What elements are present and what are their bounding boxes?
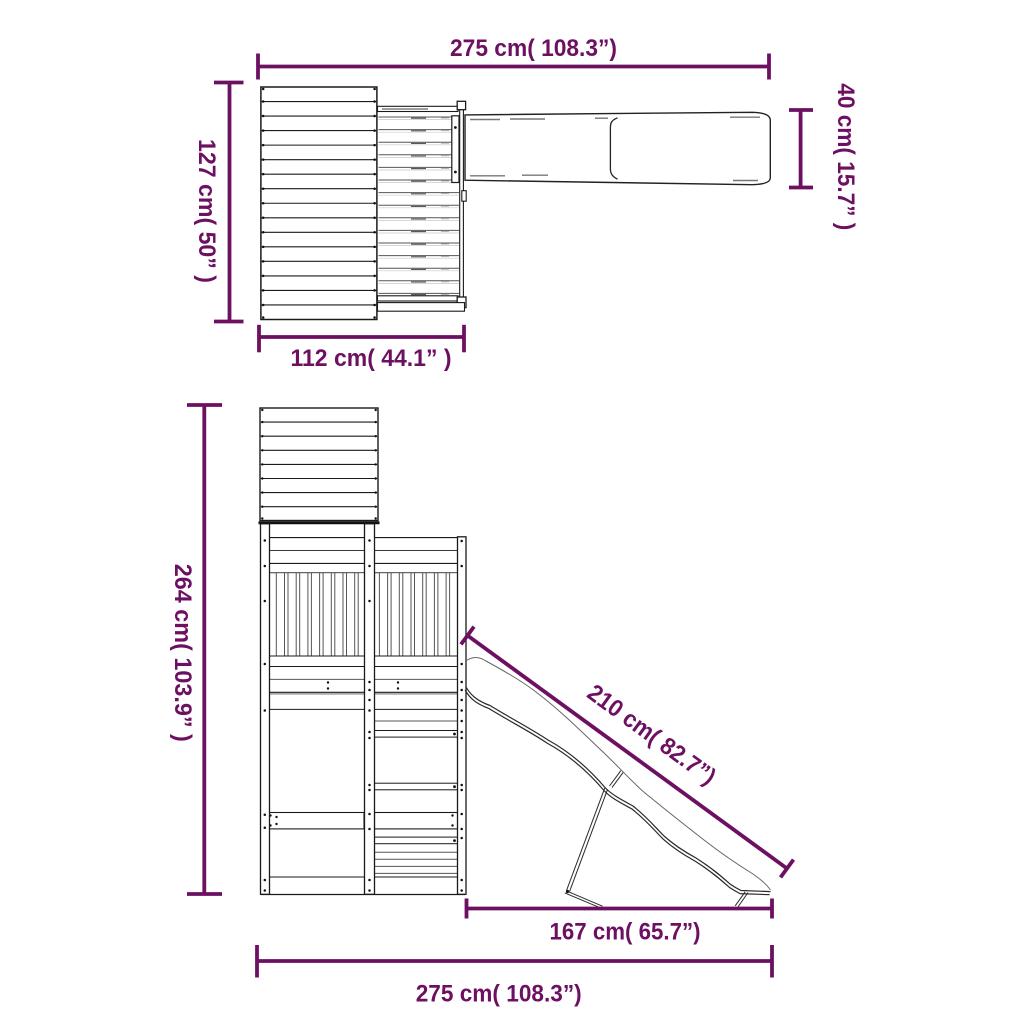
svg-text:275 cm( 108.3”): 275 cm( 108.3”) <box>450 35 617 62</box>
svg-text:40 cm( 15.7” ): 40 cm( 15.7” ) <box>832 83 859 230</box>
svg-text:127 cm( 50” ): 127 cm( 50” ) <box>193 139 220 283</box>
svg-text:112 cm( 44.1” ): 112 cm( 44.1” ) <box>291 345 452 372</box>
svg-text:167 cm( 65.7”): 167 cm( 65.7”) <box>550 918 701 945</box>
svg-text:264 cm( 103.9” ): 264 cm( 103.9” ) <box>169 564 196 742</box>
svg-text:275 cm( 108.3”): 275 cm( 108.3”) <box>416 981 582 1008</box>
